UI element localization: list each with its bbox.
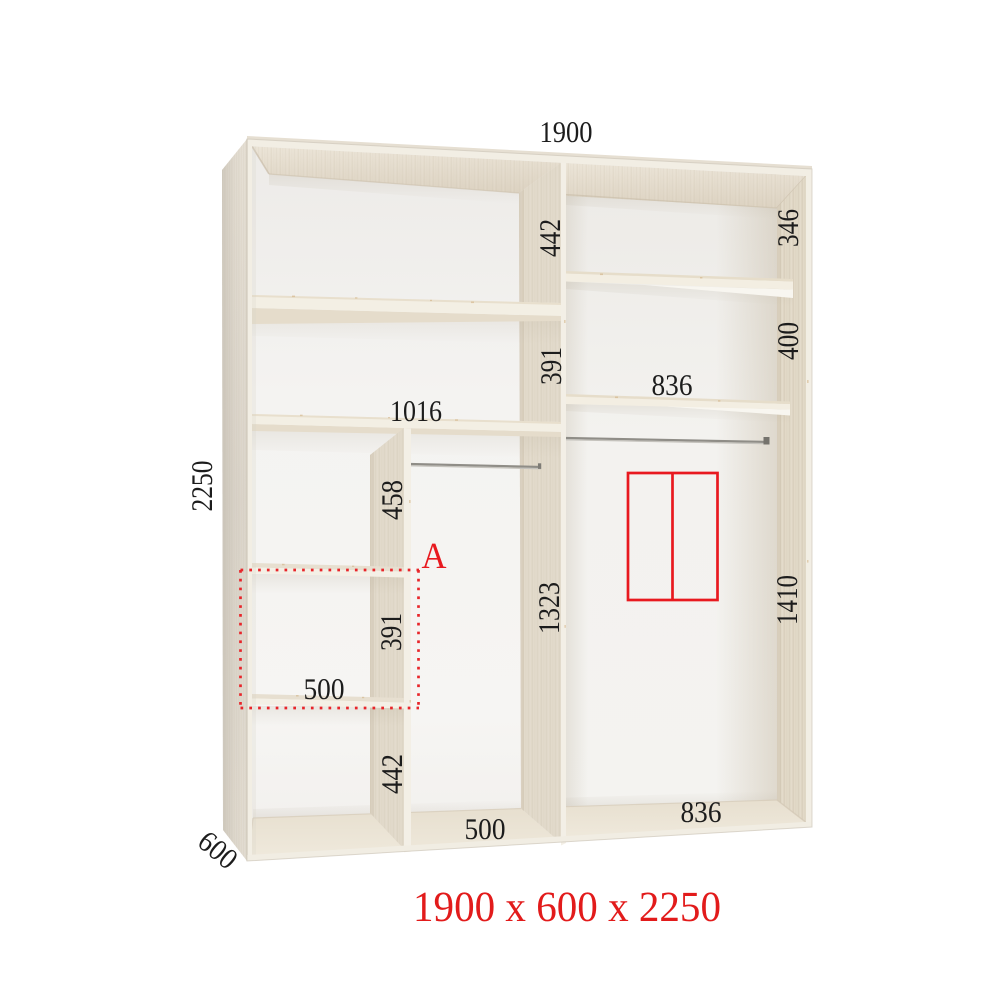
svg-text:1900: 1900 <box>540 116 593 149</box>
svg-text:391: 391 <box>375 613 408 651</box>
svg-text:442: 442 <box>534 219 567 257</box>
svg-text:400: 400 <box>772 322 805 360</box>
svg-text:391: 391 <box>535 347 568 385</box>
svg-text:346: 346 <box>772 209 805 247</box>
svg-text:1016: 1016 <box>390 395 442 428</box>
svg-text:1410: 1410 <box>771 575 804 625</box>
svg-text:458: 458 <box>376 480 409 520</box>
svg-text:A: A <box>422 536 447 577</box>
svg-text:1900 x 600 x 2250: 1900 x 600 x 2250 <box>413 884 721 931</box>
svg-text:500: 500 <box>304 673 345 706</box>
svg-text:2250: 2250 <box>186 461 219 512</box>
svg-text:1323: 1323 <box>533 582 566 634</box>
svg-text:836: 836 <box>652 369 693 402</box>
svg-text:836: 836 <box>681 796 722 829</box>
svg-text:500: 500 <box>465 813 506 846</box>
svg-text:442: 442 <box>376 754 409 794</box>
